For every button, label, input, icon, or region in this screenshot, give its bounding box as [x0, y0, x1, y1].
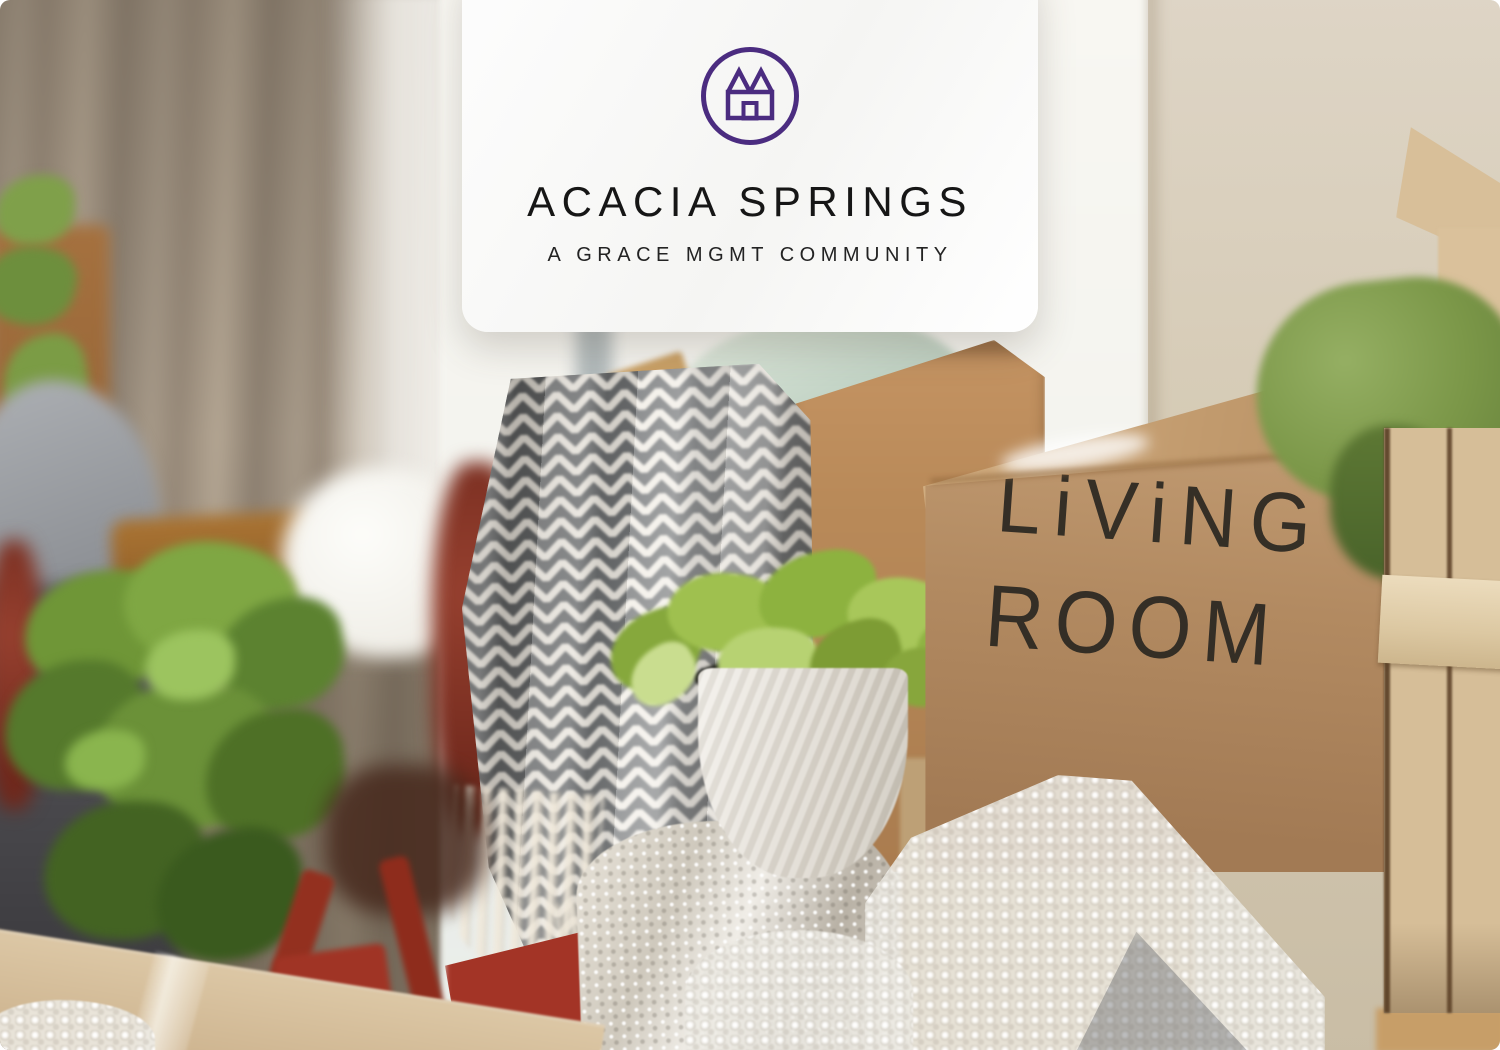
box-handwritten-label: LiViNG ROOM: [986, 460, 1348, 684]
stacked-boxes-right: [1384, 428, 1500, 1013]
moving-day-photo: LiViNG ROOM ACACIA SPRINGS A GRACE MG: [0, 0, 1500, 1050]
stack-shadow: [1384, 923, 1500, 1013]
brand-subtitle: A GRACE MGMT COMMUNITY: [547, 244, 952, 267]
floor: [1376, 1008, 1500, 1050]
wall-corner: [1146, 0, 1166, 430]
logo-card: ACACIA SPRINGS A GRACE MGMT COMMUNITY: [462, 0, 1038, 332]
box-label-line2: ROOM: [982, 572, 1312, 682]
house-in-circle-icon: [698, 44, 802, 148]
brand-title: ACACIA SPRINGS: [527, 178, 973, 226]
crumpled-tape-band: [1378, 575, 1500, 670]
bubble-wrapped-item: [685, 930, 913, 1050]
